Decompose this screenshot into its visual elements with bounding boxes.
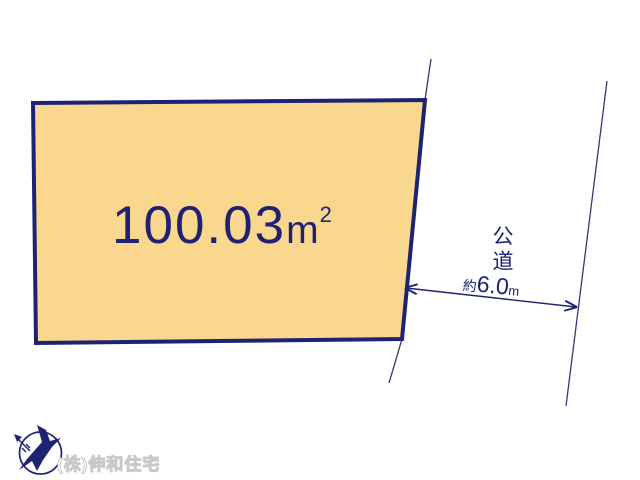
- road-name-label: 公道: [491, 225, 512, 275]
- area-value: 100.03: [112, 196, 286, 255]
- area-superscript: 2: [320, 202, 334, 227]
- parcel-area-label: 100.03m2: [112, 199, 334, 252]
- road-width-unit: m: [508, 283, 520, 299]
- company-watermark: (株)伸和住宅: [57, 450, 160, 475]
- north-arrow-bird-compass-icon: [14, 425, 62, 474]
- area-unit: m: [286, 209, 319, 252]
- road-edge-line-right: [566, 81, 607, 406]
- north-needle-arrowhead: [14, 434, 22, 442]
- road-width-value: 6.0: [476, 271, 511, 300]
- bird-icon: [19, 425, 61, 471]
- needle-fletch-2: [22, 448, 26, 452]
- site-plan-canvas: 100.03m2 公道 約6.0m (株)伸和住宅: [0, 0, 640, 480]
